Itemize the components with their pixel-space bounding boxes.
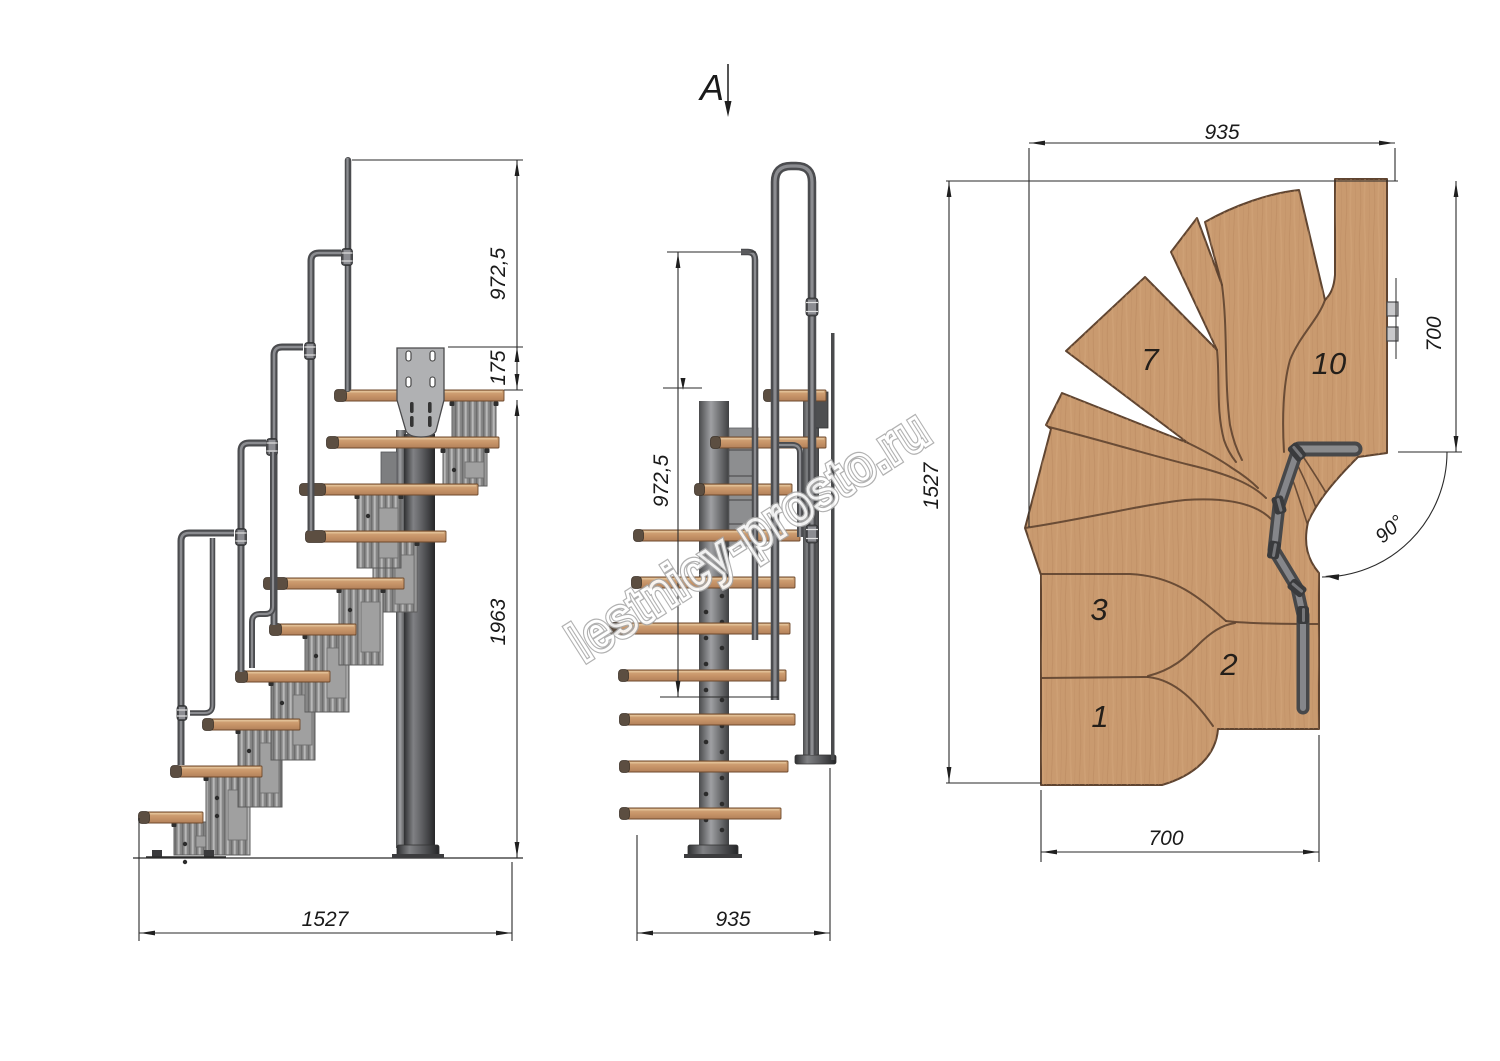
- svg-text:935: 935: [715, 908, 750, 931]
- svg-text:3: 3: [1090, 592, 1107, 627]
- svg-text:7: 7: [1141, 342, 1160, 377]
- svg-text:700: 700: [1423, 316, 1446, 351]
- svg-text:1527: 1527: [302, 908, 350, 931]
- svg-text:1: 1: [1091, 699, 1108, 734]
- svg-text:700: 700: [1148, 827, 1183, 850]
- svg-text:972,5: 972,5: [650, 454, 673, 507]
- svg-text:935: 935: [1204, 121, 1239, 144]
- svg-text:1527: 1527: [920, 461, 943, 509]
- svg-text:2: 2: [1219, 647, 1237, 682]
- svg-text:1963: 1963: [487, 598, 510, 645]
- svg-text:A: A: [698, 67, 724, 108]
- svg-text:175: 175: [487, 350, 510, 385]
- svg-text:972,5: 972,5: [487, 247, 510, 300]
- svg-text:10: 10: [1312, 346, 1346, 381]
